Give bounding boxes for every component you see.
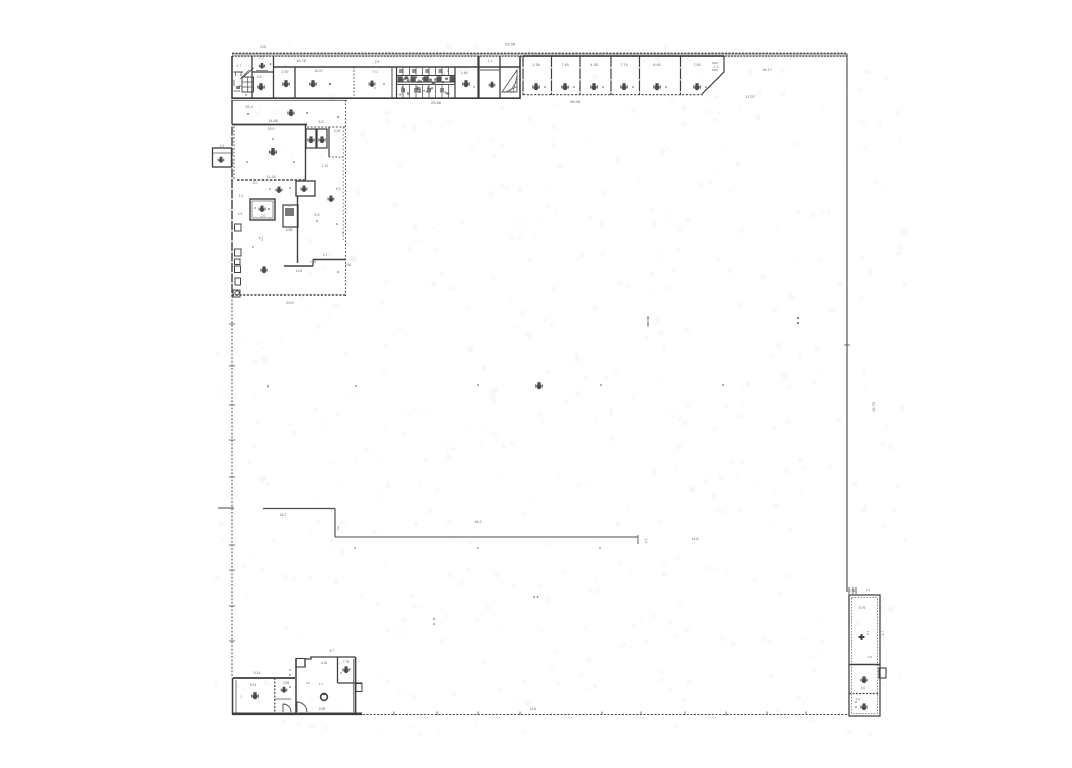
svg-text:2.98: 2.98: [283, 681, 289, 685]
svg-text:5.91: 5.91: [250, 683, 257, 687]
svg-text:1.1: 1.1: [488, 59, 493, 63]
svg-text:1.1: 1.1: [714, 65, 719, 69]
svg-text:1.70: 1.70: [322, 164, 329, 168]
svg-text:4.9: 4.9: [257, 75, 262, 79]
svg-text:19.0: 19.0: [268, 127, 275, 131]
svg-text:4.38: 4.38: [590, 63, 597, 67]
svg-text:5.79: 5.79: [859, 606, 866, 610]
svg-text:15.7: 15.7: [280, 513, 287, 517]
svg-text:4.18: 4.18: [321, 661, 327, 665]
svg-text:49.98: 49.98: [570, 99, 581, 104]
svg-text:29.98: 29.98: [505, 42, 516, 47]
svg-text:2.18: 2.18: [334, 129, 341, 133]
svg-text:7.0: 7.0: [373, 70, 378, 74]
svg-text:29.0: 29.0: [286, 301, 293, 305]
svg-text:0.2: 0.2: [336, 526, 340, 531]
svg-text:8.40: 8.40: [653, 63, 660, 67]
svg-text:5.7: 5.7: [259, 236, 264, 240]
svg-text:1.0: 1.0: [866, 588, 871, 592]
svg-text:4.9: 4.9: [336, 187, 341, 191]
svg-text:8.7: 8.7: [330, 649, 335, 653]
svg-text:4.98: 4.98: [286, 228, 293, 232]
svg-text:2.0: 2.0: [306, 681, 311, 685]
svg-text:1.3: 1.3: [239, 194, 244, 198]
svg-text:1.0: 1.0: [220, 144, 225, 148]
svg-text:14.8: 14.8: [530, 707, 537, 711]
svg-text:45.2: 45.2: [475, 520, 482, 524]
svg-text:2.0: 2.0: [261, 214, 266, 218]
svg-text:2.0: 2.0: [259, 56, 264, 60]
svg-text:4.0: 4.0: [861, 686, 866, 690]
svg-text:13.4: 13.4: [296, 269, 303, 273]
svg-text:11.18: 11.18: [266, 175, 275, 179]
svg-text:7.78: 7.78: [343, 660, 350, 664]
svg-text:25.86: 25.86: [431, 100, 442, 105]
svg-text:7.74: 7.74: [620, 63, 627, 67]
svg-text:4.9: 4.9: [868, 655, 873, 659]
svg-text:2.06: 2.06: [260, 45, 266, 49]
svg-text:7.45: 7.45: [561, 63, 568, 67]
svg-text:1.9: 1.9: [856, 697, 861, 701]
svg-text:18.17: 18.17: [762, 67, 773, 72]
svg-text:7.0: 7.0: [288, 204, 293, 208]
svg-text:8.07: 8.07: [315, 69, 322, 73]
svg-text:2.59: 2.59: [282, 70, 289, 74]
svg-text:1.7: 1.7: [237, 64, 242, 68]
svg-text:2.9: 2.9: [375, 60, 380, 64]
svg-text:7.45: 7.45: [693, 63, 700, 67]
svg-text:1: 1: [240, 695, 242, 699]
svg-text:2.95: 2.95: [849, 589, 855, 593]
svg-text:8.3: 8.3: [319, 120, 324, 124]
svg-text:2.28: 2.28: [310, 260, 316, 264]
svg-text:46.75: 46.75: [872, 402, 876, 412]
svg-text:4.9: 4.9: [238, 212, 243, 216]
svg-text:9.98: 9.98: [319, 707, 326, 711]
svg-text:14.8: 14.8: [692, 537, 699, 541]
svg-text:5.9: 5.9: [315, 213, 320, 217]
svg-text:16.76: 16.76: [296, 58, 307, 63]
svg-text:9.14: 9.14: [254, 671, 261, 675]
svg-text:1: 1: [267, 385, 269, 389]
svg-text:1.46: 1.46: [461, 71, 468, 75]
svg-text:2.9: 2.9: [866, 631, 870, 636]
svg-text:5.0: 5.0: [253, 181, 258, 185]
svg-text:17.37: 17.37: [745, 94, 756, 99]
svg-text:1.7: 1.7: [319, 682, 324, 686]
svg-text:4.7: 4.7: [323, 253, 328, 257]
svg-text:14.88: 14.88: [268, 119, 278, 123]
svg-text:4.98: 4.98: [345, 263, 351, 267]
svg-text:1.7: 1.7: [881, 631, 885, 636]
svg-text:1.0: 1.0: [644, 539, 648, 544]
svg-text:1.36: 1.36: [532, 63, 539, 67]
svg-text:25.4: 25.4: [245, 105, 252, 109]
